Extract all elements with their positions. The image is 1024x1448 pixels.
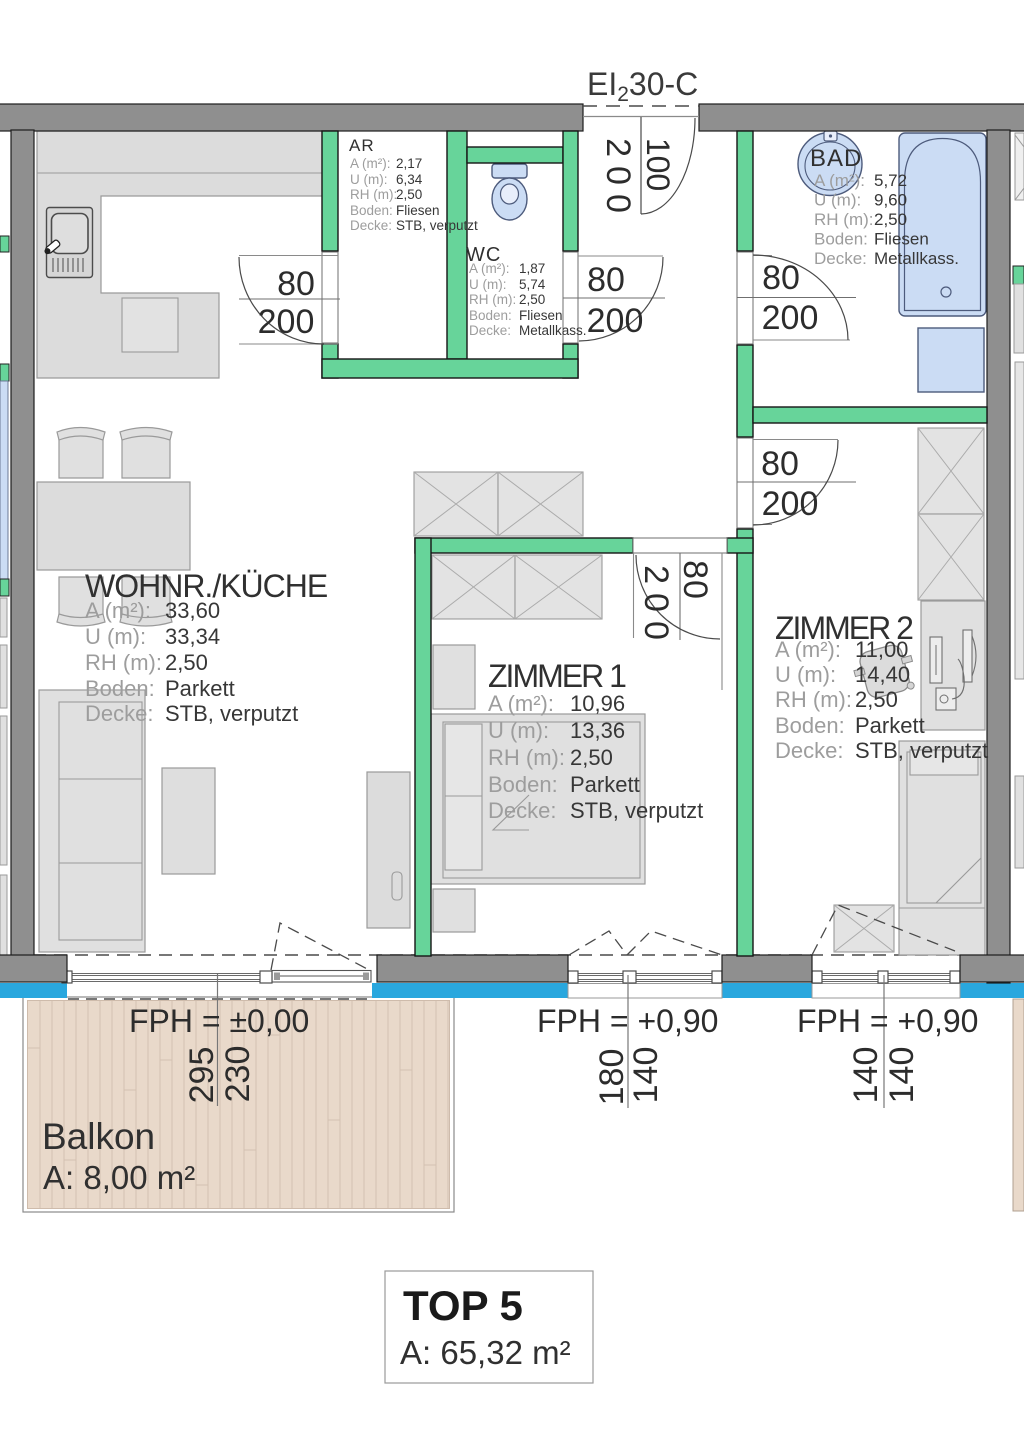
svg-text:33,60: 33,60 [165,598,220,623]
svg-text:2,17: 2,17 [396,156,422,171]
svg-text:Boden:: Boden: [488,772,558,797]
svg-text:14,40: 14,40 [855,662,910,687]
svg-text:FPH = ±0,00: FPH = ±0,00 [129,1003,309,1039]
svg-text:Metallkass.: Metallkass. [519,323,587,338]
svg-text:A (m²):: A (m²): [85,598,151,623]
svg-text:13,36: 13,36 [570,718,625,743]
svg-text:RH (m):: RH (m): [85,650,162,675]
svg-text:Parkett: Parkett [855,713,925,738]
svg-text:200: 200 [762,485,819,523]
svg-text:2,50: 2,50 [570,745,613,770]
svg-text:Parkett: Parkett [570,772,640,797]
svg-text:2,50: 2,50 [855,687,898,712]
svg-text:Parkett: Parkett [165,676,235,701]
svg-text:200: 200 [762,299,819,337]
svg-text:Decke:: Decke: [85,701,153,726]
svg-text:A (m²):: A (m²): [775,637,841,662]
svg-text:80: 80 [587,261,625,299]
svg-text:295: 295 [183,1047,221,1104]
svg-text:80: 80 [277,265,315,303]
svg-text:STB, verputzt: STB, verputzt [855,738,988,763]
svg-text:140: 140 [627,1047,665,1104]
svg-text:2,50: 2,50 [165,650,208,675]
svg-text:33,34: 33,34 [165,624,220,649]
svg-text:100: 100 [640,138,676,191]
svg-text:BAD: BAD [810,145,862,172]
svg-text:80: 80 [761,445,799,483]
svg-text:STB, verputzt: STB, verputzt [570,798,703,823]
svg-text:STB, verputzt: STB, verputzt [165,701,298,726]
svg-text:180: 180 [593,1049,631,1106]
svg-text:A (m²):: A (m²): [814,171,865,190]
svg-text:RH (m):: RH (m): [814,210,873,229]
svg-text:200: 200 [637,565,675,649]
svg-text:11,00: 11,00 [855,637,908,662]
svg-text:Decke:: Decke: [350,218,392,233]
svg-text:RH (m):: RH (m): [775,687,852,712]
svg-text:5,72: 5,72 [874,171,907,190]
svg-text:5,74: 5,74 [519,277,546,292]
svg-text:Fliesen: Fliesen [396,203,440,218]
svg-text:140: 140 [883,1047,921,1104]
svg-text:Decke:: Decke: [814,249,867,268]
svg-text:80: 80 [762,259,800,297]
svg-text:ZIMMER 1: ZIMMER 1 [488,658,626,694]
svg-text:1,87: 1,87 [519,261,545,276]
svg-text:Metallkass.: Metallkass. [874,249,959,268]
svg-text:A (m²):: A (m²): [488,691,554,716]
svg-text:RH (m):: RH (m): [350,187,397,202]
svg-text:A (m²):: A (m²): [350,156,391,171]
svg-text:Boden:: Boden: [775,713,845,738]
svg-text:EI230-C: EI230-C [587,66,698,106]
svg-text:STB, verputzt: STB, verputzt [396,218,478,233]
svg-text:200: 200 [258,303,315,341]
svg-text:140: 140 [847,1047,885,1104]
svg-text:Decke:: Decke: [488,798,556,823]
svg-text:Fliesen: Fliesen [874,230,929,249]
svg-text:Decke:: Decke: [775,738,843,763]
svg-text:A: 65,32 m²: A: 65,32 m² [400,1334,571,1371]
svg-text:U (m):: U (m): [85,624,146,649]
svg-text:Fliesen: Fliesen [519,308,563,323]
svg-text:Balkon: Balkon [42,1116,155,1157]
svg-text:Boden:: Boden: [469,308,512,323]
svg-text:Boden:: Boden: [85,676,155,701]
svg-text:A (m²):: A (m²): [469,261,510,276]
svg-text:U (m):: U (m): [350,172,388,187]
svg-text:200: 200 [587,302,644,340]
svg-text:A: 8,00 m²: A: 8,00 m² [43,1159,195,1196]
svg-text:Decke:: Decke: [469,323,511,338]
svg-text:AR: AR [349,136,375,155]
svg-text:FPH = +0,90: FPH = +0,90 [537,1003,718,1039]
svg-text:U (m):: U (m): [488,718,549,743]
svg-text:2,50: 2,50 [396,187,422,202]
svg-text:TOP 5: TOP 5 [403,1282,523,1329]
svg-text:10,96: 10,96 [570,691,625,716]
svg-text:FPH = +0,90: FPH = +0,90 [797,1003,978,1039]
svg-text:Boden:: Boden: [350,203,393,218]
svg-text:U (m):: U (m): [775,662,836,687]
svg-text:6,34: 6,34 [396,172,423,187]
svg-text:2,50: 2,50 [519,292,545,307]
svg-text:2,50: 2,50 [874,210,907,229]
svg-text:U (m):: U (m): [814,191,861,210]
svg-text:Boden:: Boden: [814,230,868,249]
svg-text:80: 80 [676,560,714,600]
svg-text:U (m):: U (m): [469,277,507,292]
svg-text:200: 200 [599,138,637,222]
svg-text:RH (m):: RH (m): [488,745,565,770]
svg-text:230: 230 [219,1046,257,1103]
svg-text:9,60: 9,60 [874,191,907,210]
svg-text:RH (m):: RH (m): [469,292,516,307]
